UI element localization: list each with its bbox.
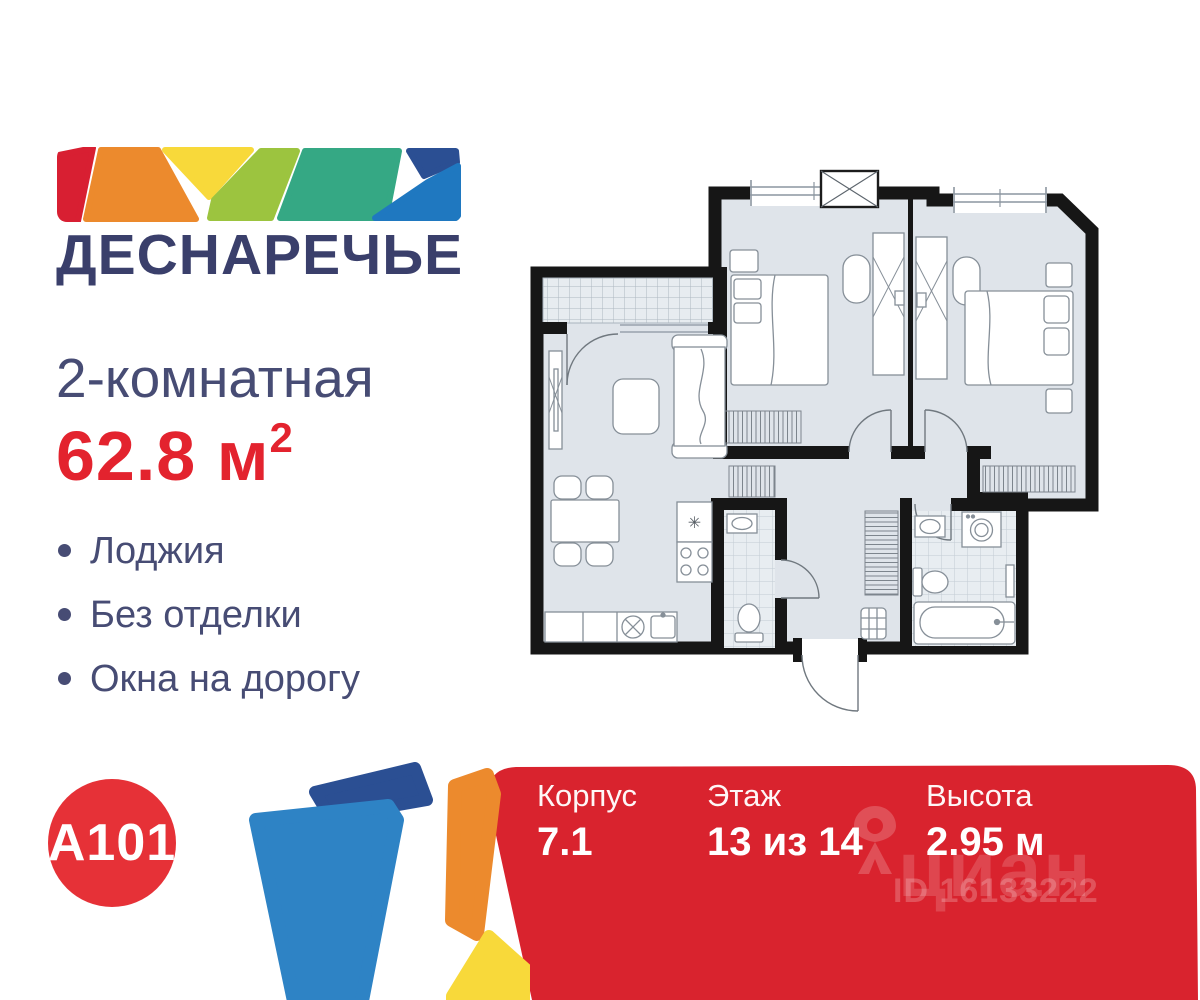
bullet-dot-icon <box>58 672 71 685</box>
feature-item: Окна на дорогу <box>56 658 360 701</box>
wc-sink-icon <box>727 514 757 533</box>
project-name: ДЕСНАРЕЧЬЕ <box>56 222 463 288</box>
bullet-dot-icon <box>58 608 71 621</box>
mosaic-orange-tile <box>452 775 494 934</box>
mosaic-blue-tile <box>256 806 397 1000</box>
loggia <box>543 278 713 323</box>
vent-shaft-icon <box>821 171 878 207</box>
bedroom1-wardrobe-hatch <box>719 411 801 443</box>
floor-plan: ✳ <box>525 165 1100 720</box>
developer-logo-badge: A101 <box>48 779 176 907</box>
svg-text:✳: ✳ <box>688 515 701 532</box>
developer-logo-text: A101 <box>48 813 176 873</box>
bed1-icon <box>731 275 828 385</box>
project-logo-mosaic <box>57 147 462 222</box>
kitchen-counter-icon <box>545 612 677 642</box>
nightstand-icon <box>730 250 758 272</box>
banner-label: Высота <box>926 778 1045 814</box>
sofa-icon <box>672 335 727 458</box>
feature-item: Лоджия <box>56 530 360 573</box>
mosaic-teal-tile <box>280 151 399 218</box>
bedroom2-wardrobe-hatch <box>983 466 1075 492</box>
watermark-listing-id: ID 16133222 <box>893 872 1099 911</box>
banner-item-korpus: Корпус 7.1 <box>537 778 637 865</box>
loggia-floor-hatch <box>543 278 713 323</box>
banner-value: 13 из 14 <box>707 820 863 865</box>
nightstand-icon <box>1046 263 1072 287</box>
entry-door <box>793 638 867 711</box>
banner-label: Этаж <box>707 778 863 814</box>
banner-value: 7.1 <box>537 820 637 865</box>
bathtub-icon <box>914 602 1015 644</box>
stove-icon <box>677 542 712 582</box>
coffee-table-icon <box>613 379 659 434</box>
hallway-wardrobe-hatch <box>729 466 775 497</box>
fridge-icon: ✳ <box>677 502 712 542</box>
bed2-icon <box>965 291 1073 385</box>
banner-item-vysota: Высота 2.95 м <box>926 778 1045 865</box>
developer-mosaic <box>240 762 530 1000</box>
banner-item-etazh: Этаж 13 из 14 <box>707 778 863 865</box>
feature-item: Без отделки <box>56 594 360 637</box>
pouf-icon <box>861 608 886 639</box>
area-number: 62.8 м <box>56 417 269 495</box>
bedroom2-window <box>953 187 1047 213</box>
area-superscript: 2 <box>269 414 293 461</box>
nightstand-icon <box>1046 389 1072 413</box>
mosaic-yellow-tile <box>452 936 527 1000</box>
bathroom-sink-icon <box>915 516 945 537</box>
towel-radiator-icon <box>1006 565 1014 597</box>
feature-list: Лоджия Без отделки Окна на дорогу <box>56 530 360 722</box>
banner-label: Корпус <box>537 778 637 814</box>
washing-machine-icon <box>962 512 1001 547</box>
bullet-dot-icon <box>58 544 71 557</box>
rooms-title: 2-комнатная <box>56 346 374 410</box>
tv-unit-icon <box>549 351 562 449</box>
banner-value: 2.95 м <box>926 820 1045 865</box>
corridor-wardrobe-hatch <box>865 511 898 595</box>
area-value: 62.8 м2 <box>56 414 294 496</box>
